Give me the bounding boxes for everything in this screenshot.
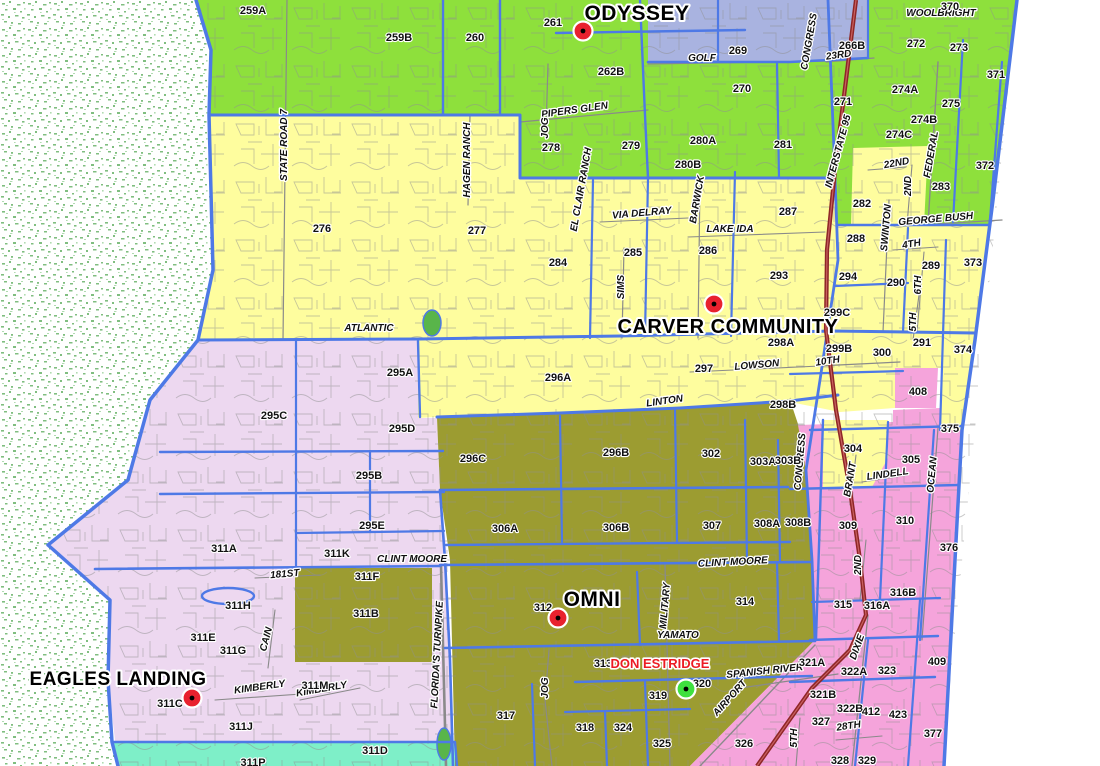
map-viewport[interactable]: STATE ROAD 7HAGEN RANCHPIPERS GLENJOGGOL… — [0, 0, 1100, 766]
road-label-hagen-ranch: HAGEN RANCH — [462, 122, 473, 198]
zone-label-327: 327 — [812, 716, 830, 728]
zone-label-287: 287 — [779, 206, 797, 218]
zone-label-277: 277 — [468, 225, 486, 237]
boundary-line — [160, 451, 443, 452]
zone-label-259b: 259B — [386, 32, 412, 44]
road-label-2nd: 2ND — [903, 176, 914, 197]
zone-label-298a: 298A — [768, 337, 794, 349]
road-label-atlantic: ATLANTIC — [343, 323, 394, 334]
zone-label-324: 324 — [614, 722, 633, 734]
zone-label-311p: 311P — [240, 757, 265, 766]
school-marker-dot — [556, 616, 561, 621]
zone-label-305: 305 — [902, 454, 920, 466]
zone-label-412: 412 — [862, 706, 880, 718]
zone-label-261: 261 — [544, 17, 562, 29]
zone-label-309: 309 — [839, 520, 857, 532]
zone-label-296c: 296C — [460, 453, 486, 465]
zone-label-303a: 303A — [750, 456, 776, 468]
school-label-odyssey: ODYSSEY — [584, 2, 689, 25]
zone-label-316b: 316B — [890, 587, 916, 599]
zone-label-296b: 296B — [603, 447, 629, 459]
zone-label-307: 307 — [703, 520, 721, 532]
zone-label-370: 370 — [941, 1, 959, 13]
school-marker-dot — [684, 687, 689, 692]
zone-label-295e: 295E — [359, 520, 385, 532]
road-label-state-road-7: STATE ROAD 7 — [279, 109, 290, 181]
zone-label-294: 294 — [839, 271, 858, 283]
zone-label-310: 310 — [896, 515, 914, 527]
zone-label-409: 409 — [928, 656, 946, 668]
zone-label-313: 313 — [594, 658, 612, 670]
zone-label-271: 271 — [834, 96, 852, 108]
zone-label-373: 373 — [964, 257, 982, 269]
road-label-5th: 5TH — [789, 728, 800, 748]
school-label-carver-community: CARVER COMMUNITY — [618, 316, 839, 338]
road-label-yamato: YAMATO — [657, 630, 699, 641]
golf-course-patch — [423, 310, 441, 336]
zone-label-281: 281 — [774, 139, 792, 151]
zone-label-375: 375 — [941, 423, 959, 435]
school-marker-dot — [581, 29, 586, 34]
zone-label-311c: 311C — [157, 698, 183, 710]
zone-label-306a: 306A — [492, 523, 518, 535]
zone-label-311a: 311A — [211, 543, 237, 555]
zone-label-274c: 274C — [886, 129, 912, 141]
zone-label-311b: 311B — [353, 608, 379, 620]
school-marker-dot — [712, 302, 717, 307]
zone-label-328: 328 — [831, 755, 849, 766]
zone-label-290: 290 — [887, 277, 905, 289]
zone-label-374: 374 — [954, 344, 973, 356]
zone-label-311f: 311F — [355, 571, 380, 583]
zone-label-295a: 295A — [387, 367, 413, 379]
zone-label-408: 408 — [909, 386, 927, 398]
zone-label-306b: 306B — [603, 522, 629, 534]
zone-label-318: 318 — [576, 722, 594, 734]
zone-label-286: 286 — [699, 245, 717, 257]
zone-label-289: 289 — [922, 260, 940, 272]
zone-label-288: 288 — [847, 233, 865, 245]
zone-label-297: 297 — [695, 363, 713, 375]
school-label-omni: OMNI — [564, 588, 621, 611]
zone-label-319: 319 — [649, 690, 667, 702]
zone-label-372: 372 — [976, 160, 994, 172]
zone-label-311g: 311G — [220, 645, 246, 657]
zone-label-321a: 321A — [799, 657, 825, 669]
zone-label-316a: 316A — [864, 600, 890, 612]
zone-label-276: 276 — [313, 223, 331, 235]
road-label-5th: 5TH — [908, 312, 919, 332]
school-label-eagles-landing: EAGLES LANDING — [30, 669, 207, 690]
zone-label-272: 272 — [907, 38, 925, 50]
zone-label-302: 302 — [702, 448, 720, 460]
zone-label-266b: 266B — [839, 40, 865, 52]
zone-label-371: 371 — [987, 69, 1005, 81]
zone-label-275: 275 — [942, 98, 960, 110]
zone-label-322b: 322B — [837, 703, 863, 715]
zone-label-285: 285 — [624, 247, 642, 259]
zone-label-314: 314 — [736, 596, 755, 608]
zone-label-311h: 311H — [225, 600, 251, 612]
zone-label-298b: 298B — [770, 399, 796, 411]
zone-label-270: 270 — [733, 83, 751, 95]
zone-label-304: 304 — [844, 443, 863, 455]
road-label-lake-ida: LAKE IDA — [706, 224, 753, 235]
road-label-golf: GOLF — [688, 53, 717, 64]
zone-label-280a: 280A — [690, 135, 716, 147]
zone-label-280b: 280B — [675, 159, 701, 171]
zone-label-326: 326 — [735, 738, 753, 750]
zone-label-274a: 274A — [892, 84, 918, 96]
zone-label-295b: 295B — [356, 470, 382, 482]
zone-label-311d: 311D — [362, 745, 388, 757]
zone-label-311j: 311J — [229, 721, 253, 733]
zone-label-308b: 308B — [785, 517, 811, 529]
zone-label-279: 279 — [622, 140, 640, 152]
zone-label-274b: 274B — [911, 114, 937, 126]
zone-label-303b: 303B — [775, 455, 801, 467]
zone-label-300: 300 — [873, 347, 891, 359]
road-label-2nd: 2ND — [853, 555, 864, 576]
turnpike-interchange-green — [437, 728, 451, 760]
zone-label-308a: 308A — [754, 518, 780, 530]
zone-label-315: 315 — [834, 599, 852, 611]
zone-label-321b: 321B — [810, 689, 836, 701]
zone-label-376: 376 — [940, 542, 958, 554]
road-label-jog: JOG — [540, 117, 551, 138]
zone-label-311k: 311K — [324, 548, 350, 560]
zone-label-260: 260 — [466, 32, 484, 44]
school-label-don-estridge: DON ESTRIDGE — [611, 656, 710, 671]
map-canvas[interactable]: STATE ROAD 7HAGEN RANCHPIPERS GLENJOGGOL… — [0, 0, 1100, 766]
zone-label-329: 329 — [858, 755, 876, 766]
road-label-sims: SIMS — [616, 274, 627, 299]
zone-label-284: 284 — [549, 257, 568, 269]
zone-label-296a: 296A — [545, 372, 571, 384]
zone-label-295d: 295D — [389, 423, 415, 435]
zone-label-311e: 311E — [190, 632, 215, 644]
school-marker-dot — [190, 696, 195, 701]
zone-label-311m: 311M — [302, 680, 329, 692]
zone-label-293: 293 — [770, 270, 788, 282]
zone-label-283: 283 — [932, 181, 950, 193]
road-label-jog: JOG — [540, 677, 551, 698]
road-label-6th: 6TH — [913, 275, 924, 295]
zone-label-273: 273 — [950, 42, 968, 54]
zone-label-317: 317 — [497, 710, 515, 722]
zone-label-377: 377 — [924, 728, 942, 740]
zone-label-269: 269 — [729, 45, 747, 57]
zone-label-259a: 259A — [240, 5, 266, 17]
zone-label-299b: 299B — [826, 343, 852, 355]
zone-label-322a: 322A — [841, 666, 867, 678]
zone-label-262b: 262B — [598, 66, 624, 78]
road-label-clint-moore: CLINT MOORE — [377, 554, 447, 565]
zone-label-278: 278 — [542, 142, 560, 154]
zone-label-423: 423 — [889, 709, 907, 721]
zone-label-291: 291 — [913, 337, 931, 349]
zone-label-282: 282 — [853, 198, 871, 210]
zone-label-325: 325 — [653, 738, 671, 750]
zone-label-295c: 295C — [261, 410, 287, 422]
zone-label-323: 323 — [878, 665, 896, 677]
